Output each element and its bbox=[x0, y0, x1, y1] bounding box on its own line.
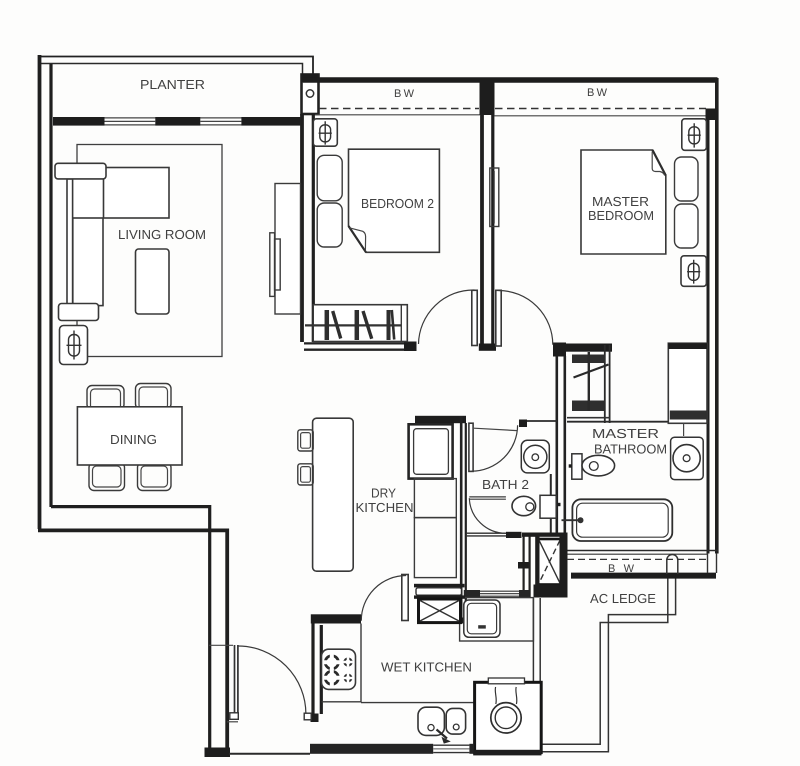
svg-text:DINING: DINING bbox=[110, 432, 157, 447]
svg-text:MASTER: MASTER bbox=[592, 194, 649, 209]
svg-text:MASTER: MASTER bbox=[592, 426, 659, 441]
svg-text:BATHROOM: BATHROOM bbox=[594, 441, 667, 456]
svg-text:BATH 2: BATH 2 bbox=[482, 477, 529, 492]
svg-text:AC LEDGE: AC LEDGE bbox=[590, 591, 656, 606]
svg-text:BW: BW bbox=[394, 88, 415, 100]
svg-text:KITCHEN: KITCHEN bbox=[355, 500, 413, 515]
svg-text:DRY: DRY bbox=[371, 485, 396, 500]
svg-text:LIVING ROOM: LIVING ROOM bbox=[118, 227, 206, 242]
svg-text:BW: BW bbox=[587, 87, 608, 99]
svg-text:BEDROOM: BEDROOM bbox=[588, 208, 654, 223]
svg-text:BEDROOM 2: BEDROOM 2 bbox=[361, 196, 434, 211]
svg-text:WET KITCHEN: WET KITCHEN bbox=[381, 659, 472, 674]
svg-text:PLANTER: PLANTER bbox=[140, 77, 205, 92]
